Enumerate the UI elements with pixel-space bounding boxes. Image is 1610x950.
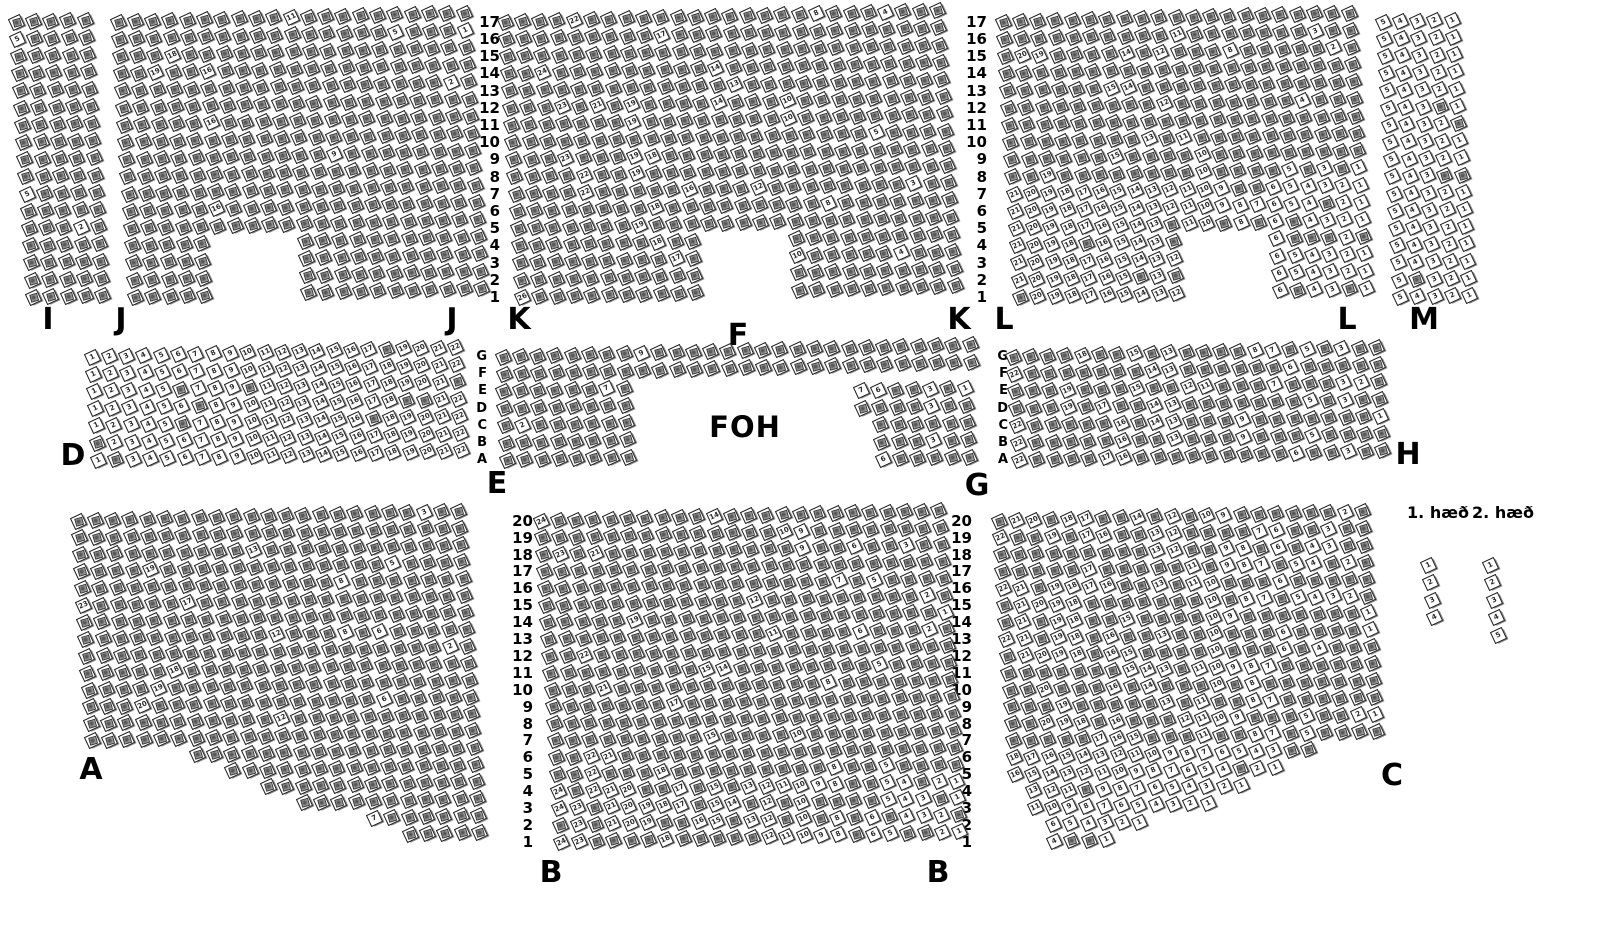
seat[interactable] — [808, 759, 825, 776]
seat[interactable]: 6 — [1269, 247, 1286, 264]
seat[interactable]: 12 — [760, 811, 777, 828]
seat[interactable] — [145, 30, 162, 47]
seat[interactable] — [68, 150, 85, 167]
seat[interactable] — [370, 606, 387, 623]
seat[interactable] — [1079, 544, 1096, 561]
seat[interactable] — [1016, 82, 1033, 99]
seat[interactable] — [381, 196, 398, 213]
seat[interactable] — [431, 160, 448, 177]
seat[interactable] — [921, 157, 938, 174]
seat[interactable] — [274, 727, 291, 744]
seat[interactable] — [382, 213, 399, 230]
seat[interactable] — [89, 434, 106, 451]
seat[interactable]: 6 — [1282, 358, 1299, 375]
seat[interactable]: 8 — [1232, 214, 1249, 231]
seat[interactable] — [605, 561, 622, 578]
seat[interactable]: 1 — [1448, 80, 1465, 97]
seat[interactable] — [111, 613, 128, 630]
seat[interactable] — [906, 655, 923, 672]
seat[interactable]: 14 — [1129, 509, 1146, 526]
seat[interactable]: 5 — [1392, 289, 1409, 306]
seat[interactable] — [447, 723, 464, 740]
seat[interactable] — [470, 807, 487, 824]
seat[interactable] — [161, 12, 178, 29]
seat[interactable] — [584, 511, 601, 528]
seat[interactable] — [725, 812, 742, 829]
seat[interactable] — [910, 338, 927, 355]
seat[interactable] — [647, 679, 664, 696]
seat[interactable] — [790, 358, 807, 375]
seat[interactable] — [1072, 696, 1089, 713]
seat[interactable]: 3 — [1409, 12, 1426, 29]
seat[interactable]: 5 — [1381, 117, 1398, 134]
seat[interactable]: 20 — [133, 697, 150, 714]
seat[interactable] — [730, 626, 747, 643]
seat[interactable] — [892, 706, 909, 723]
seat[interactable] — [15, 134, 32, 151]
seat[interactable]: 14 — [312, 394, 329, 411]
seat[interactable] — [703, 360, 720, 377]
seat[interactable] — [1003, 151, 1020, 168]
seat[interactable] — [257, 147, 274, 164]
seat[interactable] — [537, 580, 554, 597]
seat[interactable] — [352, 590, 369, 607]
seat[interactable] — [549, 29, 566, 46]
seat[interactable] — [879, 38, 896, 55]
seat[interactable] — [1046, 12, 1063, 29]
seat[interactable]: 5 — [156, 398, 173, 415]
seat[interactable] — [837, 194, 854, 211]
seat[interactable]: 8 — [1242, 658, 1259, 675]
seat[interactable]: 10 — [792, 776, 809, 793]
seat[interactable] — [1086, 97, 1103, 114]
seat[interactable] — [1081, 11, 1098, 28]
seat[interactable] — [717, 694, 734, 711]
seat[interactable] — [739, 7, 756, 24]
seat[interactable]: 4 — [1294, 92, 1311, 109]
seat[interactable] — [672, 526, 689, 543]
seat[interactable] — [301, 608, 318, 625]
seat[interactable] — [278, 216, 295, 233]
seat[interactable]: 6 — [1275, 623, 1292, 640]
seat[interactable]: 4 — [1400, 151, 1417, 168]
seat[interactable] — [214, 28, 231, 45]
seat[interactable] — [222, 148, 239, 165]
seat[interactable]: 16 — [1113, 414, 1130, 431]
seat[interactable] — [602, 45, 619, 62]
seat[interactable] — [786, 675, 803, 692]
seat[interactable] — [201, 97, 218, 114]
seat[interactable] — [652, 9, 669, 26]
seat[interactable] — [383, 809, 400, 826]
seat[interactable] — [1269, 428, 1286, 445]
seat[interactable] — [135, 151, 152, 168]
seat[interactable] — [899, 554, 916, 571]
seat[interactable]: 3 — [1198, 778, 1215, 795]
seat[interactable] — [639, 560, 656, 577]
seat[interactable] — [329, 197, 346, 214]
seat[interactable]: 3 — [1316, 160, 1333, 177]
seat[interactable] — [168, 696, 185, 713]
seat[interactable] — [684, 712, 701, 729]
seat[interactable] — [784, 658, 801, 675]
seat[interactable] — [693, 112, 710, 129]
seat[interactable] — [193, 543, 210, 560]
seat[interactable] — [145, 612, 162, 629]
seat[interactable] — [1032, 613, 1049, 630]
seat[interactable] — [1318, 194, 1335, 211]
seat[interactable]: 8 — [207, 380, 224, 397]
seat[interactable] — [583, 11, 600, 28]
seat[interactable] — [850, 125, 867, 142]
seat[interactable] — [401, 808, 418, 825]
seat[interactable] — [93, 613, 110, 630]
seat[interactable] — [251, 643, 268, 660]
seat[interactable] — [580, 714, 597, 731]
seat[interactable] — [787, 230, 804, 247]
seat[interactable] — [809, 505, 826, 522]
seat[interactable] — [825, 5, 842, 22]
seat[interactable] — [903, 141, 920, 158]
seat[interactable] — [176, 236, 193, 253]
seat[interactable]: 16 — [347, 410, 364, 427]
seat[interactable] — [250, 44, 267, 61]
seat[interactable] — [1051, 81, 1068, 98]
seat[interactable] — [1183, 430, 1200, 447]
seat[interactable] — [69, 512, 86, 529]
seat[interactable] — [588, 562, 605, 579]
seat[interactable]: 2 — [1353, 374, 1370, 391]
seat[interactable] — [891, 433, 908, 450]
seat[interactable] — [1087, 114, 1104, 131]
seat[interactable]: 13 — [298, 446, 315, 463]
seat[interactable] — [1368, 339, 1385, 356]
seat[interactable] — [153, 150, 170, 167]
seat[interactable] — [858, 339, 875, 356]
seat[interactable] — [742, 59, 759, 76]
seat[interactable] — [742, 541, 759, 558]
seat[interactable] — [424, 639, 441, 656]
seat[interactable] — [1089, 696, 1106, 713]
seat[interactable] — [788, 709, 805, 726]
seat[interactable] — [634, 268, 651, 285]
seat[interactable] — [385, 572, 402, 589]
seat[interactable] — [777, 811, 794, 828]
seat[interactable] — [902, 604, 919, 621]
seat[interactable]: 5 — [1288, 555, 1305, 572]
seat[interactable] — [1094, 510, 1111, 527]
seat[interactable] — [225, 200, 242, 217]
seat[interactable] — [296, 215, 313, 232]
seat[interactable] — [335, 607, 352, 624]
seat[interactable] — [1198, 395, 1215, 412]
seat[interactable]: 20 — [412, 340, 429, 357]
seat[interactable]: 13 — [1156, 660, 1173, 677]
seat[interactable] — [338, 59, 355, 76]
seat[interactable] — [716, 677, 733, 694]
seat[interactable]: 13 — [1148, 542, 1165, 559]
seat[interactable] — [437, 571, 454, 588]
seat[interactable] — [694, 129, 711, 146]
seat[interactable] — [614, 234, 631, 251]
seat[interactable] — [1110, 380, 1127, 397]
seat[interactable] — [712, 128, 729, 145]
seat[interactable] — [352, 283, 369, 300]
seat[interactable] — [738, 359, 755, 376]
seat[interactable] — [1252, 539, 1269, 556]
seat[interactable]: 7 — [1260, 658, 1277, 675]
seat[interactable] — [260, 507, 277, 524]
seat[interactable]: 16 — [1114, 432, 1131, 449]
seat[interactable] — [348, 539, 365, 556]
seat[interactable] — [280, 558, 297, 575]
seat[interactable] — [256, 711, 273, 728]
seat[interactable] — [521, 133, 538, 150]
seat[interactable] — [382, 521, 399, 538]
seat[interactable] — [1264, 161, 1281, 178]
seat[interactable] — [941, 414, 958, 431]
seat[interactable] — [566, 765, 583, 782]
seat[interactable] — [923, 175, 940, 192]
seat[interactable]: 5 — [882, 825, 899, 842]
seat[interactable] — [355, 640, 372, 657]
seat[interactable] — [1100, 594, 1117, 611]
seat[interactable]: 15 — [1112, 234, 1129, 251]
seat[interactable]: 1 — [1447, 63, 1464, 80]
seat[interactable] — [855, 673, 872, 690]
seat[interactable]: 5 — [871, 656, 888, 673]
seat[interactable]: 10 — [246, 448, 263, 465]
seat[interactable]: 2 — [1421, 574, 1438, 591]
seat[interactable] — [889, 416, 906, 433]
seat[interactable]: 19 — [639, 814, 656, 831]
seat[interactable]: 1 — [90, 452, 107, 469]
seat[interactable]: 23 — [568, 799, 585, 816]
seat[interactable] — [175, 543, 192, 560]
seat[interactable] — [876, 356, 893, 373]
seat[interactable] — [158, 236, 175, 253]
seat[interactable] — [1046, 562, 1063, 579]
seat[interactable] — [1001, 117, 1018, 134]
seat[interactable] — [393, 690, 410, 707]
seat[interactable] — [533, 529, 550, 546]
seat[interactable]: 17 — [360, 341, 377, 358]
seat[interactable]: 23 — [571, 833, 588, 850]
seat[interactable]: 19 — [1039, 167, 1056, 184]
seat[interactable] — [254, 113, 271, 130]
seat[interactable]: 17 — [1091, 730, 1108, 747]
seat[interactable] — [705, 25, 722, 42]
seat[interactable]: 2 — [1441, 236, 1458, 253]
seat[interactable] — [624, 595, 641, 612]
seat[interactable] — [1042, 511, 1059, 528]
seat[interactable] — [17, 168, 34, 185]
seat[interactable]: 12 — [761, 828, 778, 845]
seat[interactable]: 4 — [1398, 116, 1415, 133]
seat[interactable] — [767, 659, 784, 676]
seat[interactable] — [726, 558, 743, 575]
seat[interactable] — [438, 5, 455, 22]
seat[interactable] — [344, 742, 361, 759]
seat[interactable]: 10 — [240, 362, 257, 379]
seat[interactable] — [596, 697, 613, 714]
seat[interactable] — [811, 57, 828, 74]
seat[interactable] — [878, 21, 895, 38]
seat[interactable] — [865, 90, 882, 107]
seat[interactable] — [587, 80, 604, 97]
seat[interactable] — [858, 245, 875, 262]
seat[interactable] — [1432, 98, 1449, 115]
seat[interactable] — [621, 544, 638, 561]
seat[interactable] — [679, 164, 696, 181]
seat[interactable]: 11 — [778, 828, 795, 845]
seat[interactable] — [731, 162, 748, 179]
seat[interactable]: 3 — [1420, 184, 1437, 201]
seat[interactable]: 9 — [224, 379, 241, 396]
seat[interactable] — [1162, 379, 1179, 396]
seat[interactable] — [600, 11, 617, 28]
seat[interactable]: 7 — [1262, 692, 1279, 709]
seat[interactable] — [709, 829, 726, 846]
seat[interactable] — [1012, 13, 1029, 30]
seat[interactable] — [1124, 695, 1141, 712]
seat[interactable] — [1216, 523, 1233, 540]
seat[interactable] — [449, 756, 466, 773]
seat[interactable] — [86, 166, 103, 183]
seat[interactable] — [759, 58, 776, 75]
seat[interactable] — [401, 555, 418, 572]
seat[interactable] — [316, 574, 333, 591]
seat[interactable] — [1270, 445, 1287, 462]
seat[interactable]: 22 — [1010, 434, 1027, 451]
seat[interactable] — [436, 554, 453, 571]
seat[interactable] — [221, 712, 238, 729]
seat[interactable] — [262, 541, 279, 558]
seat[interactable] — [1095, 415, 1112, 432]
seat[interactable] — [1215, 395, 1232, 412]
seat[interactable] — [168, 115, 185, 132]
seat[interactable] — [94, 630, 111, 647]
seat[interactable]: 14 — [310, 377, 327, 394]
seat[interactable]: 9 — [326, 146, 343, 163]
seat[interactable] — [120, 185, 137, 202]
seat[interactable] — [676, 593, 693, 610]
seat[interactable] — [143, 271, 160, 288]
seat[interactable] — [1142, 147, 1159, 164]
seat[interactable] — [691, 559, 708, 576]
seat[interactable]: 14 — [709, 94, 726, 111]
seat[interactable] — [369, 589, 386, 606]
seat[interactable]: 12 — [1152, 44, 1169, 61]
seat[interactable] — [528, 237, 545, 254]
seat[interactable] — [104, 511, 121, 528]
seat[interactable]: 12 — [1166, 542, 1183, 559]
seat[interactable] — [1039, 731, 1056, 748]
seat[interactable] — [1322, 443, 1339, 460]
seat[interactable] — [191, 201, 208, 218]
seat[interactable] — [31, 116, 48, 133]
seat[interactable] — [293, 181, 310, 198]
seat[interactable]: 18 — [1057, 184, 1074, 201]
seat[interactable]: 22 — [575, 166, 592, 183]
seat[interactable] — [1185, 8, 1202, 25]
seat[interactable] — [400, 538, 417, 555]
seat[interactable] — [358, 110, 375, 127]
seat[interactable]: 11 — [261, 413, 278, 430]
seat[interactable] — [911, 261, 928, 278]
seat[interactable] — [1233, 394, 1250, 411]
seat[interactable] — [311, 760, 328, 777]
seat[interactable] — [1055, 150, 1072, 167]
seat[interactable] — [655, 61, 672, 78]
seat[interactable] — [1308, 40, 1325, 57]
seat[interactable] — [1321, 426, 1338, 443]
seat[interactable] — [234, 644, 251, 661]
seat[interactable] — [996, 597, 1013, 614]
seat[interactable] — [91, 235, 108, 252]
seat[interactable] — [579, 697, 596, 714]
seat[interactable] — [429, 706, 446, 723]
seat[interactable] — [1092, 363, 1109, 380]
seat[interactable] — [734, 214, 751, 231]
seat[interactable] — [1273, 590, 1290, 607]
seat[interactable] — [842, 741, 859, 758]
seat[interactable] — [75, 253, 92, 270]
seat[interactable] — [620, 527, 637, 544]
seat[interactable]: 4 — [896, 774, 913, 791]
seat[interactable] — [942, 432, 959, 449]
seat[interactable] — [1007, 383, 1024, 400]
seat[interactable] — [205, 729, 222, 746]
seat[interactable] — [208, 509, 225, 526]
seat[interactable] — [144, 595, 161, 612]
seat[interactable] — [1046, 451, 1063, 468]
seat[interactable] — [633, 251, 650, 268]
seat[interactable]: 3 — [1323, 280, 1340, 297]
seat[interactable]: 20 — [621, 815, 638, 832]
seat[interactable]: 10 — [1206, 625, 1223, 642]
seat[interactable] — [585, 528, 602, 545]
seat[interactable] — [1229, 162, 1246, 179]
seat[interactable] — [299, 574, 316, 591]
seat[interactable] — [879, 520, 896, 537]
seat[interactable] — [835, 160, 852, 177]
seat[interactable] — [819, 657, 836, 674]
seat[interactable] — [469, 790, 486, 807]
seat[interactable]: 5 — [1298, 708, 1315, 725]
seat[interactable]: 7 — [1196, 744, 1213, 761]
seat[interactable]: 17 — [1078, 527, 1095, 544]
seat[interactable]: 5 — [1380, 99, 1397, 116]
seat[interactable] — [354, 623, 371, 640]
seat[interactable]: 10 — [789, 247, 806, 264]
seat[interactable] — [603, 527, 620, 544]
seat[interactable] — [1037, 697, 1054, 714]
seat[interactable] — [1125, 712, 1142, 729]
seat[interactable] — [180, 29, 197, 46]
seat[interactable] — [372, 58, 389, 75]
seat[interactable]: 3 — [1317, 177, 1334, 194]
seat[interactable]: 19 — [401, 443, 418, 460]
seat[interactable] — [1245, 145, 1262, 162]
seat[interactable] — [854, 656, 871, 673]
seat[interactable] — [188, 166, 205, 183]
seat[interactable] — [1337, 409, 1354, 426]
seat[interactable] — [147, 646, 164, 663]
seat[interactable] — [1057, 364, 1074, 381]
seat[interactable]: 13 — [1146, 216, 1163, 233]
seat[interactable] — [312, 198, 329, 215]
